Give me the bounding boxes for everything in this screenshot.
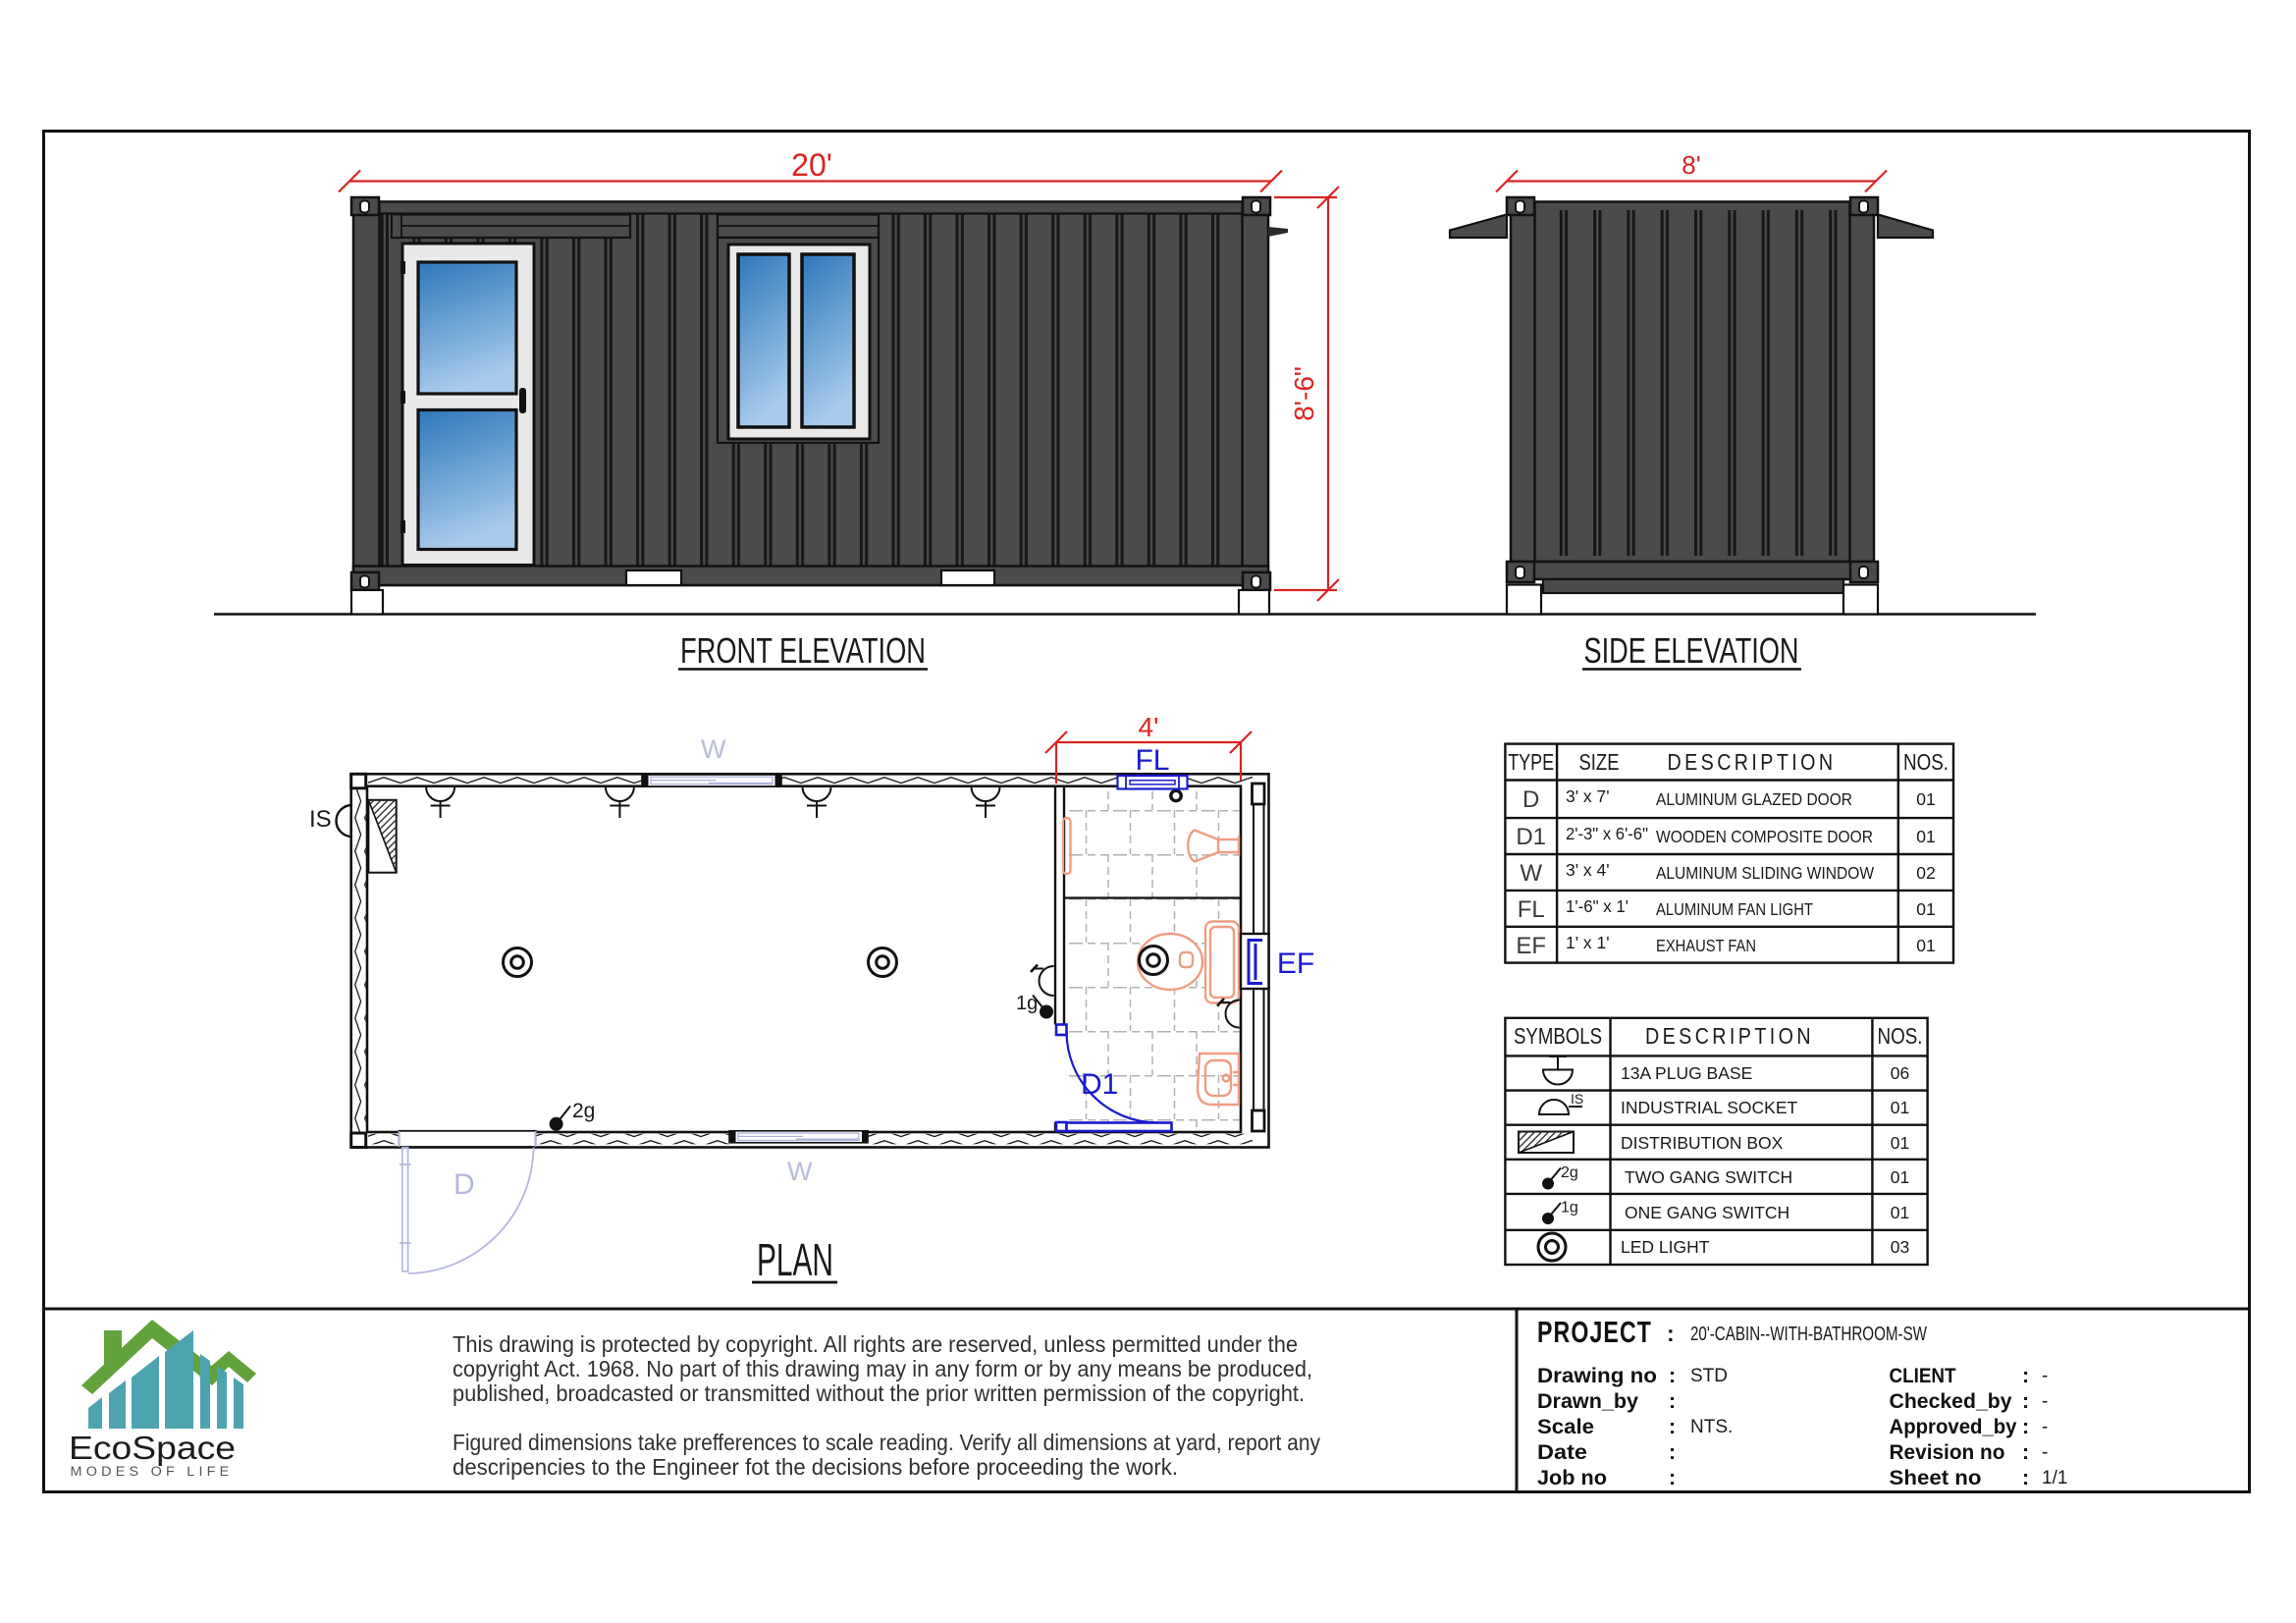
svg-text::: : bbox=[1667, 1321, 1675, 1346]
svg-text:13A PLUG BASE: 13A PLUG BASE bbox=[1621, 1063, 1752, 1083]
svg-text:2'-3" x 6'-6": 2'-3" x 6'-6" bbox=[1566, 824, 1648, 843]
svg-text::: : bbox=[2022, 1440, 2029, 1464]
svg-text:Drawn_by: Drawn_by bbox=[1537, 1389, 1638, 1413]
svg-text::: : bbox=[2022, 1364, 2029, 1387]
svg-text:02: 02 bbox=[1916, 863, 1935, 883]
svg-text:published, broadcasted or tran: published, broadcasted or transmitted wi… bbox=[453, 1380, 1305, 1406]
svg-text:3' x 4': 3' x 4' bbox=[1566, 860, 1610, 880]
svg-text:3' x 7': 3' x 7' bbox=[1566, 786, 1610, 806]
svg-text::: : bbox=[1669, 1466, 1676, 1489]
svg-text:D: D bbox=[1522, 786, 1539, 813]
svg-text:NTS.: NTS. bbox=[1690, 1417, 1733, 1437]
svg-text:Figured dimensions take preffe: Figured dimensions take prefferences to … bbox=[453, 1430, 1320, 1455]
svg-text:Date: Date bbox=[1537, 1440, 1587, 1464]
svg-text:DISTRIBUTION BOX: DISTRIBUTION BOX bbox=[1621, 1133, 1784, 1153]
svg-text:NOS.: NOS. bbox=[1878, 1023, 1923, 1049]
svg-text:Approved_by: Approved_by bbox=[1890, 1415, 2017, 1438]
svg-text:PLAN: PLAN bbox=[757, 1234, 833, 1285]
svg-text:-: - bbox=[2042, 1366, 2048, 1386]
svg-text:-: - bbox=[2042, 1442, 2048, 1463]
svg-text:SIDE ELEVATION: SIDE ELEVATION bbox=[1584, 630, 1799, 671]
svg-text:Sheet no: Sheet no bbox=[1890, 1466, 1982, 1489]
svg-text:Scale: Scale bbox=[1537, 1415, 1594, 1438]
svg-text:PROJECT: PROJECT bbox=[1537, 1315, 1652, 1349]
svg-text:1g: 1g bbox=[1561, 1200, 1578, 1217]
svg-text:ALUMINUM SLIDING WINDOW: ALUMINUM SLIDING WINDOW bbox=[1656, 863, 1874, 883]
svg-text:FRONT ELEVATION: FRONT ELEVATION bbox=[680, 630, 926, 671]
svg-text:1' x 1': 1' x 1' bbox=[1566, 933, 1610, 952]
svg-text:01: 01 bbox=[1916, 936, 1935, 955]
svg-text:DESCRIPTION: DESCRIPTION bbox=[1668, 749, 1837, 775]
svg-text:8'-6": 8'-6" bbox=[1289, 366, 1319, 421]
svg-text:IS: IS bbox=[309, 806, 332, 833]
svg-text:LED LIGHT: LED LIGHT bbox=[1621, 1237, 1710, 1257]
svg-text:01: 01 bbox=[1916, 789, 1935, 809]
svg-text:Drawing no: Drawing no bbox=[1537, 1364, 1657, 1387]
svg-text:DESCRIPTION: DESCRIPTION bbox=[1645, 1023, 1814, 1049]
svg-text::: : bbox=[1669, 1389, 1676, 1413]
svg-text:01: 01 bbox=[1916, 827, 1935, 846]
svg-text:1/1: 1/1 bbox=[2042, 1468, 2067, 1488]
svg-text:CLIENT: CLIENT bbox=[1890, 1364, 1956, 1387]
svg-text:2g: 2g bbox=[1561, 1164, 1578, 1181]
svg-text:This drawing is protected by c: This drawing is protected by copyright. … bbox=[453, 1331, 1298, 1357]
svg-text:06: 06 bbox=[1891, 1063, 1909, 1083]
svg-text::: : bbox=[1669, 1415, 1676, 1438]
svg-text:20'-CABIN--WITH-BATHROOM-SW: 20'-CABIN--WITH-BATHROOM-SW bbox=[1690, 1324, 1927, 1345]
svg-text:EF: EF bbox=[1516, 933, 1546, 959]
svg-text::: : bbox=[2022, 1389, 2029, 1413]
svg-text:01: 01 bbox=[1891, 1098, 1909, 1117]
svg-text:01: 01 bbox=[1891, 1203, 1909, 1222]
svg-text:8': 8' bbox=[1682, 150, 1700, 180]
svg-text:SYMBOLS: SYMBOLS bbox=[1514, 1023, 1602, 1049]
svg-text:4': 4' bbox=[1139, 712, 1159, 742]
svg-text::: : bbox=[2022, 1415, 2029, 1438]
svg-text:01: 01 bbox=[1891, 1167, 1909, 1187]
svg-text:Checked_by: Checked_by bbox=[1890, 1389, 2012, 1413]
svg-text:2g: 2g bbox=[572, 1100, 595, 1122]
svg-text:EXHAUST FAN: EXHAUST FAN bbox=[1656, 936, 1756, 955]
svg-text:-: - bbox=[2042, 1391, 2048, 1412]
svg-text:WOODEN COMPOSITE DOOR: WOODEN COMPOSITE DOOR bbox=[1656, 827, 1873, 846]
svg-text:01: 01 bbox=[1916, 899, 1935, 919]
svg-text:EcoSpace: EcoSpace bbox=[69, 1430, 236, 1466]
svg-text:D1: D1 bbox=[1516, 824, 1546, 850]
svg-text:01: 01 bbox=[1891, 1133, 1909, 1153]
svg-text::: : bbox=[1669, 1364, 1676, 1387]
svg-text:TWO GANG SWITCH: TWO GANG SWITCH bbox=[1625, 1167, 1792, 1187]
svg-text:copyright Act. 1968. No part o: copyright Act. 1968. No part of this dra… bbox=[453, 1356, 1312, 1381]
svg-text:ALUMINUM FAN LIGHT: ALUMINUM FAN LIGHT bbox=[1656, 899, 1813, 919]
svg-text:EF: EF bbox=[1277, 947, 1314, 980]
svg-text:FL: FL bbox=[1135, 744, 1169, 777]
svg-text:IS: IS bbox=[1571, 1091, 1583, 1107]
svg-text:TYPE: TYPE bbox=[1508, 749, 1554, 775]
svg-text:D: D bbox=[454, 1168, 475, 1201]
svg-text:1g: 1g bbox=[1016, 993, 1038, 1014]
svg-text:20': 20' bbox=[791, 147, 832, 183]
svg-text:-: - bbox=[2042, 1417, 2048, 1437]
svg-text:NOS.: NOS. bbox=[1903, 749, 1949, 775]
svg-text:03: 03 bbox=[1891, 1237, 1909, 1257]
svg-text:1'-6" x 1': 1'-6" x 1' bbox=[1566, 896, 1629, 916]
svg-text:ONE GANG SWITCH: ONE GANG SWITCH bbox=[1625, 1203, 1789, 1222]
svg-text:D1: D1 bbox=[1081, 1068, 1118, 1101]
svg-text::: : bbox=[1669, 1440, 1676, 1464]
svg-text:ALUMINUM GLAZED DOOR: ALUMINUM GLAZED DOOR bbox=[1656, 789, 1852, 809]
svg-text:STD: STD bbox=[1690, 1366, 1728, 1386]
svg-text:Job no: Job no bbox=[1537, 1466, 1607, 1489]
svg-text:descripencies to the Engineer: descripencies to the Engineer fot the de… bbox=[453, 1454, 1178, 1480]
svg-text:MODES OF LIFE: MODES OF LIFE bbox=[71, 1464, 234, 1479]
svg-text:W: W bbox=[787, 1157, 813, 1186]
svg-text::: : bbox=[2022, 1466, 2029, 1489]
svg-text:FL: FL bbox=[1518, 896, 1545, 923]
svg-text:Revision no: Revision no bbox=[1890, 1440, 2005, 1464]
svg-text:W: W bbox=[1520, 860, 1542, 887]
svg-text:INDUSTRIAL SOCKET: INDUSTRIAL SOCKET bbox=[1621, 1098, 1798, 1117]
svg-text:W: W bbox=[701, 734, 726, 764]
svg-text:SIZE: SIZE bbox=[1579, 749, 1620, 775]
